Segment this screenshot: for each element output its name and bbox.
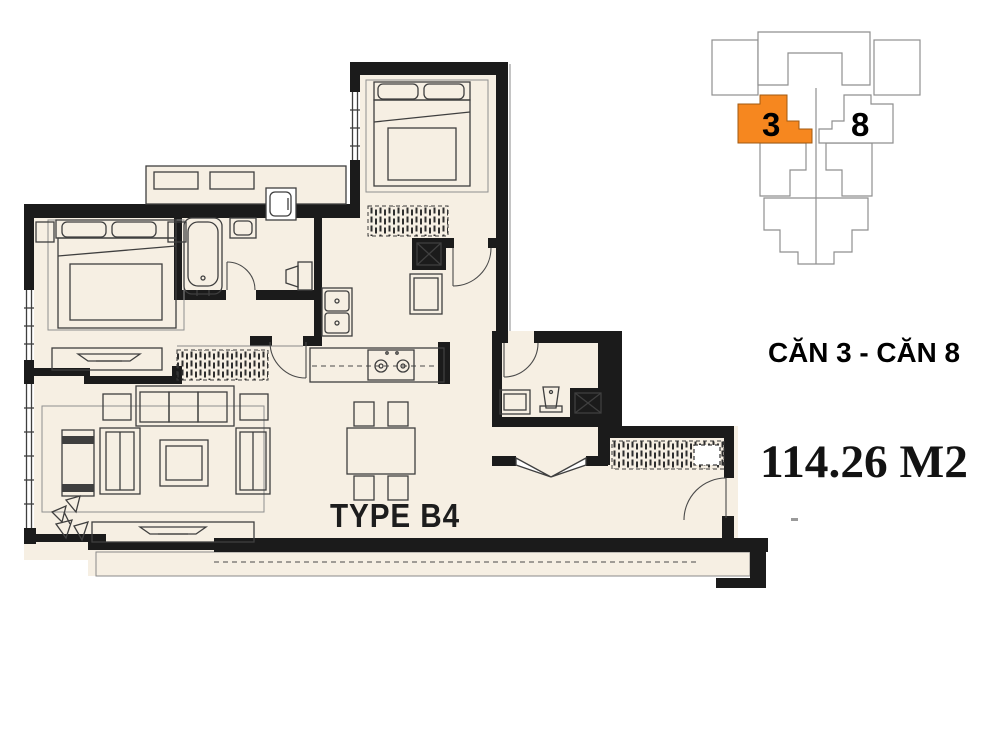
armchair-left xyxy=(100,428,140,494)
shaft-2 xyxy=(570,388,606,418)
keyplan-wing-left xyxy=(712,40,758,95)
plan-type-label: TYPE B4 xyxy=(330,497,460,534)
window-master xyxy=(350,92,360,160)
keyplan-wing-right xyxy=(874,40,920,95)
wardrobe-living xyxy=(177,350,268,380)
keyplan-unit-3-number: 3 xyxy=(762,106,780,143)
keyplan-trunk-right xyxy=(826,143,872,196)
floorplan-page: TYPE B4 3 8 CĂN 3 - CĂN 8 114.26 M2 xyxy=(0,0,1000,739)
cabinet-end xyxy=(694,445,720,465)
washing-machine xyxy=(266,188,296,220)
key-plan: 3 8 xyxy=(712,32,920,264)
keyplan-unit-8-number: 8 xyxy=(851,106,869,143)
window-bedroom2 xyxy=(24,290,34,360)
shaft-1 xyxy=(412,238,446,270)
area-caption: 114.26 M2 xyxy=(760,436,968,488)
floor-plan-image: TYPE B4 3 8 CĂN 3 - CĂN 8 114.26 M2 xyxy=(0,0,1000,739)
wardrobe-master xyxy=(368,206,448,236)
window-living xyxy=(24,384,34,528)
keyplan-trunk-left xyxy=(760,143,806,196)
print-artifact-dot xyxy=(791,518,798,521)
keyplan-top-center xyxy=(758,32,870,85)
unit-caption: CĂN 3 - CĂN 8 xyxy=(768,337,960,368)
